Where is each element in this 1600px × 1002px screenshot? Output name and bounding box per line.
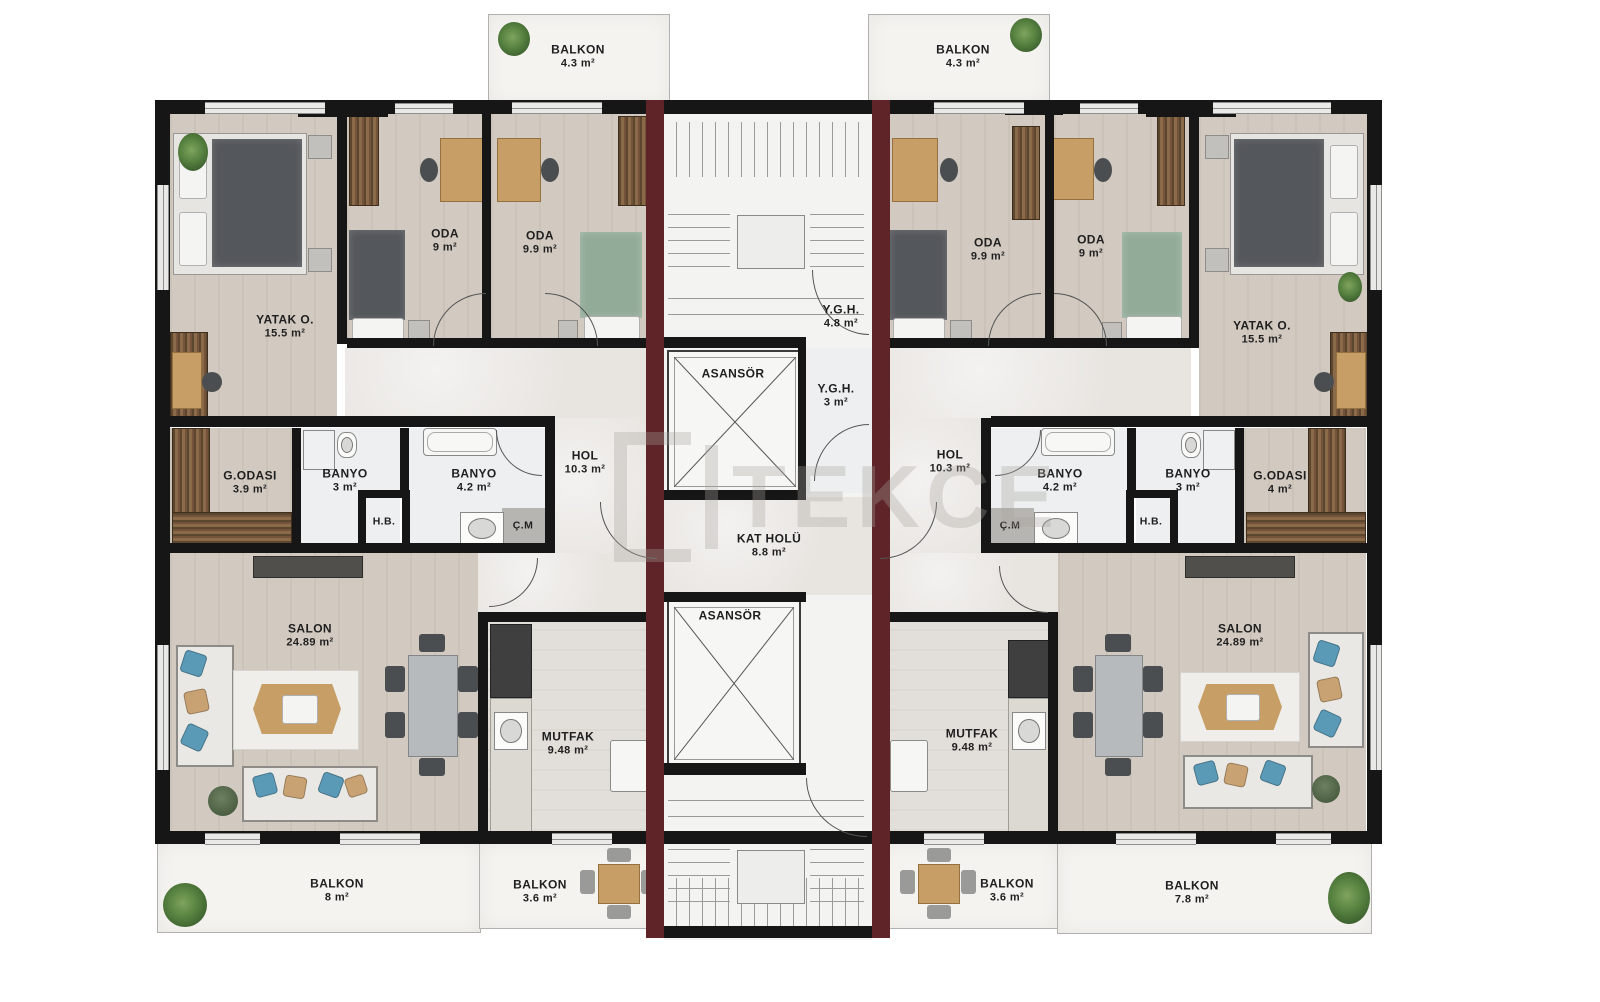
balcony-table (918, 864, 960, 904)
label-banyo42-left: BANYO4.2 m² (451, 467, 496, 496)
room-area: 10.3 m² (930, 463, 971, 477)
desk (1336, 352, 1366, 409)
wall (402, 490, 410, 543)
shower (303, 430, 335, 470)
pillow (282, 774, 307, 799)
window (1276, 833, 1331, 845)
wall (991, 543, 1367, 553)
wall (884, 338, 1199, 348)
single-bed-green (1122, 232, 1182, 318)
desk-chair (1314, 372, 1334, 392)
room-name: Y.G.H. (822, 303, 859, 317)
pouf (1312, 775, 1340, 803)
wall (1235, 428, 1244, 543)
wardrobe (1157, 116, 1185, 206)
balcony-chair (927, 905, 951, 919)
stair-landing-bottom (737, 850, 805, 904)
room-name: H.B. (373, 515, 396, 527)
room-name: ODA (431, 227, 459, 241)
room-name: HOL (572, 449, 599, 463)
wall (337, 114, 347, 344)
label-banyo42-right: BANYO4.2 m² (1037, 467, 1082, 496)
room-name: MUTFAK (542, 730, 594, 744)
corridor-left (345, 348, 648, 418)
wall (155, 543, 555, 553)
pillow (183, 688, 210, 715)
elevator-bottom (667, 600, 801, 767)
room-name: Ç.M (513, 519, 533, 531)
label-elevator-top: ASANSÖR (702, 367, 765, 382)
wall (664, 490, 806, 500)
room-name: BANYO (322, 467, 367, 481)
wardrobe (1012, 126, 1040, 220)
room-name: YATAK O. (256, 313, 314, 327)
room-area: 15.5 m² (256, 328, 314, 342)
wardrobe (349, 116, 379, 206)
label-balkon-78: BALKON7.8 m² (1165, 879, 1219, 908)
window (157, 645, 169, 770)
room-area: 4.2 m² (451, 482, 496, 496)
bed-pillow (1330, 212, 1358, 266)
label-yatak-right: YATAK O.15.5 m² (1233, 319, 1291, 348)
wall (358, 490, 366, 543)
label-hb-right: H.B. (1140, 515, 1163, 528)
kitchen-cabinet (490, 624, 532, 698)
window (395, 103, 453, 114)
kitchen-sink (494, 712, 528, 750)
plant-icon (178, 133, 208, 171)
room-name: G.ODASI (1253, 469, 1306, 483)
room-area: 8.8 m² (737, 547, 801, 561)
room-area: 10.3 m² (565, 464, 606, 478)
room-name: BANYO (1037, 467, 1082, 481)
room-area: 3 m² (322, 482, 367, 496)
room-name: BALKON (310, 877, 364, 891)
window (1370, 185, 1382, 290)
dining-chair (1105, 634, 1131, 652)
window (1213, 102, 1331, 114)
label-banyo3-right: BANYO3 m² (1165, 467, 1210, 496)
desk-chair (541, 158, 559, 182)
label-elevator-bottom: ASANSÖR (699, 609, 762, 624)
wall (648, 926, 888, 938)
room-area: 3 m² (1165, 482, 1210, 496)
bathtub (423, 428, 497, 456)
wall (545, 418, 555, 553)
room-area: 9.48 m² (542, 745, 594, 759)
room-name: HOL (937, 448, 964, 462)
window (205, 102, 325, 114)
window (1370, 645, 1382, 770)
nightstand (308, 135, 332, 159)
room-area: 15.5 m² (1233, 334, 1291, 348)
room-name: KAT HOLÜ (737, 532, 801, 546)
dining-chair (458, 666, 478, 692)
tree-icon (163, 883, 207, 927)
shower (1203, 430, 1235, 470)
wall (1189, 114, 1199, 344)
wall (1127, 428, 1136, 496)
wall (991, 416, 1367, 427)
dining-chair (1143, 666, 1163, 692)
stair-treads-right (810, 213, 864, 267)
dining-chair (1143, 712, 1163, 738)
label-cm-left: Ç.M (513, 519, 533, 532)
label-salon-right: SALON24.89 m² (1216, 622, 1263, 651)
room-name: ASANSÖR (702, 367, 765, 381)
room-name: BALKON (980, 877, 1034, 891)
label-kat-holu: KAT HOLÜ8.8 m² (737, 532, 801, 561)
label-balkon-top-right: BALKON4.3 m² (936, 43, 990, 72)
label-oda9-left: ODA9 m² (431, 227, 459, 256)
wall (347, 338, 648, 348)
label-oda99-left: ODA9.9 m² (523, 229, 557, 258)
dining-chair (419, 758, 445, 776)
window (157, 185, 169, 290)
tree-icon (1328, 872, 1370, 924)
balcony-door (1116, 833, 1196, 845)
room-name: G.ODASI (223, 469, 276, 483)
fridge (890, 740, 928, 792)
room-area: 8 m² (310, 892, 364, 906)
desk (1050, 138, 1094, 200)
wall (400, 428, 409, 496)
desk (892, 138, 938, 202)
label-mutfak-left: MUTFAK9.48 m² (542, 730, 594, 759)
wall (155, 416, 555, 427)
desk-chair (202, 372, 222, 392)
room-name: BANYO (1165, 467, 1210, 481)
wardrobe (1246, 512, 1366, 544)
dining-chair (419, 634, 445, 652)
label-salon-left: SALON24.89 m² (286, 622, 333, 651)
plant-icon (1010, 18, 1042, 52)
single-bed-green (580, 232, 642, 318)
desk (497, 138, 541, 202)
room-area: 4.8 m² (822, 318, 859, 332)
wall (656, 592, 806, 602)
room-name: ODA (1077, 233, 1105, 247)
room-area: 9.48 m² (946, 742, 998, 756)
wall (1170, 490, 1178, 543)
desk-chair (1094, 158, 1112, 182)
room-area: 3 m² (817, 397, 854, 411)
room-name: H.B. (1140, 515, 1163, 527)
room-name: BALKON (936, 43, 990, 57)
dining-table (408, 655, 458, 757)
dining-chair (1105, 758, 1131, 776)
bed-duvet (212, 139, 302, 267)
room-area: 7.8 m² (1165, 894, 1219, 908)
label-oda99-right: ODA9.9 m² (971, 236, 1005, 265)
wardrobe (618, 116, 648, 206)
desk (440, 138, 484, 202)
room-area: 24.89 m² (1216, 637, 1263, 651)
room-area: 24.89 m² (286, 637, 333, 651)
balcony-chair (961, 870, 976, 894)
dining-chair (1073, 712, 1093, 738)
balcony-door (340, 833, 420, 845)
label-godasi-left: G.ODASI3.9 m² (223, 469, 276, 498)
kitchen-cabinet (1008, 640, 1050, 698)
room-area: 3.6 m² (980, 892, 1034, 906)
stair-treads-left (668, 213, 730, 267)
floor-plan: BALKON4.3 m² BALKON4.3 m² YATAK O.15.5 m… (0, 0, 1600, 1002)
tv-console (253, 556, 363, 578)
room-name: BANYO (451, 467, 496, 481)
washing-machine (460, 512, 504, 545)
wardrobe (172, 512, 292, 544)
stair-treads-right (810, 848, 864, 902)
nightstand (1205, 248, 1229, 272)
wall (292, 428, 301, 543)
dining-chair (385, 666, 405, 692)
room-name: SALON (288, 622, 332, 636)
room-name: BALKON (551, 43, 605, 57)
label-ygh-upper: Y.G.H.4.8 m² (822, 303, 859, 332)
pillow (1223, 762, 1249, 788)
label-hol-left: HOL10.3 m² (565, 449, 606, 478)
wall (656, 763, 806, 775)
balcony-chair (607, 905, 631, 919)
dining-chair (385, 712, 405, 738)
balcony-chair (927, 848, 951, 862)
fridge (610, 740, 648, 792)
room-name: MUTFAK (946, 727, 998, 741)
table-decor (1226, 694, 1260, 721)
stair-treads-left (668, 848, 730, 902)
room-name: SALON (1218, 622, 1262, 636)
corridor-right (888, 348, 1191, 418)
room-name: ODA (974, 236, 1002, 250)
room-name: ASANSÖR (699, 609, 762, 623)
room-name: ODA (526, 229, 554, 243)
wall (981, 418, 991, 553)
wall (1048, 612, 1058, 840)
stair-treads-top (676, 122, 860, 177)
label-hol-right: HOL10.3 m² (930, 448, 971, 477)
room-area: 4 m² (1253, 484, 1306, 498)
desk-chair (420, 158, 438, 182)
room-name: BALKON (513, 878, 567, 892)
wall (888, 612, 1058, 622)
label-yatak-left: YATAK O.15.5 m² (256, 313, 314, 342)
wall (798, 337, 806, 497)
bathtub (1041, 428, 1115, 456)
wall (1045, 114, 1054, 344)
balcony-table (598, 864, 640, 904)
plant-icon (1338, 272, 1362, 302)
label-cm-right: Ç.M (1000, 519, 1020, 532)
desk (172, 352, 202, 409)
table-decor (282, 695, 318, 724)
label-banyo3-left: BANYO3 m² (322, 467, 367, 496)
room-name: BALKON (1165, 879, 1219, 893)
bed-pillow (1330, 145, 1358, 199)
room-area: 4.3 m² (936, 58, 990, 72)
balcony-chair (580, 870, 595, 894)
label-balkon-top-left: BALKON4.3 m² (551, 43, 605, 72)
label-balkon-36-right: BALKON3.6 m² (980, 877, 1034, 906)
single-bed (890, 230, 947, 320)
label-mutfak-right: MUTFAK9.48 m² (946, 727, 998, 756)
room-area: 9 m² (431, 242, 459, 256)
room-name: Ç.M (1000, 519, 1020, 531)
room-area: 9.9 m² (971, 251, 1005, 265)
room-area: 3.6 m² (513, 893, 567, 907)
tv-console (1185, 556, 1295, 578)
room-area: 4.2 m² (1037, 482, 1082, 496)
single-bed (349, 230, 405, 320)
wall (1126, 490, 1134, 543)
washing-machine (1034, 512, 1078, 545)
balcony-door (924, 833, 984, 845)
balcony-chair (900, 870, 915, 894)
nightstand (1205, 135, 1229, 159)
window (205, 833, 260, 845)
dining-chair (1073, 666, 1093, 692)
label-ygh-lower: Y.G.H.3 m² (817, 382, 854, 411)
toilet (337, 432, 357, 458)
room-name: Y.G.H. (817, 382, 854, 396)
bed-pillow (179, 212, 207, 266)
room-area: 9 m² (1077, 248, 1105, 262)
dining-table (1095, 655, 1143, 757)
wall (664, 337, 806, 348)
dining-chair (458, 712, 478, 738)
desk-chair (940, 158, 958, 182)
pillow (1316, 676, 1343, 703)
plant-icon (498, 22, 530, 56)
room-area: 4.3 m² (551, 58, 605, 72)
wall (478, 612, 488, 840)
balcony-chair (607, 848, 631, 862)
pouf (208, 786, 238, 816)
label-balkon-36-left: BALKON3.6 m² (513, 878, 567, 907)
balcony-door (552, 833, 612, 845)
room-area: 3.9 m² (223, 484, 276, 498)
label-godasi-right: G.ODASI4 m² (1253, 469, 1306, 498)
window (1080, 103, 1138, 114)
label-balkon-8: BALKON8 m² (310, 877, 364, 906)
nightstand (308, 248, 332, 272)
balcony-door (512, 102, 602, 114)
label-oda9-right: ODA9 m² (1077, 233, 1105, 262)
room-area: 9.9 m² (523, 244, 557, 258)
balcony-door (934, 102, 1024, 114)
wall (478, 612, 648, 622)
toilet (1181, 432, 1201, 458)
stair-landing-top (737, 215, 805, 269)
kitchen-sink (1012, 712, 1046, 750)
elevator-x-icon (674, 607, 794, 760)
bed-duvet (1234, 139, 1324, 267)
room-name: YATAK O. (1233, 319, 1291, 333)
label-hb-left: H.B. (373, 515, 396, 528)
